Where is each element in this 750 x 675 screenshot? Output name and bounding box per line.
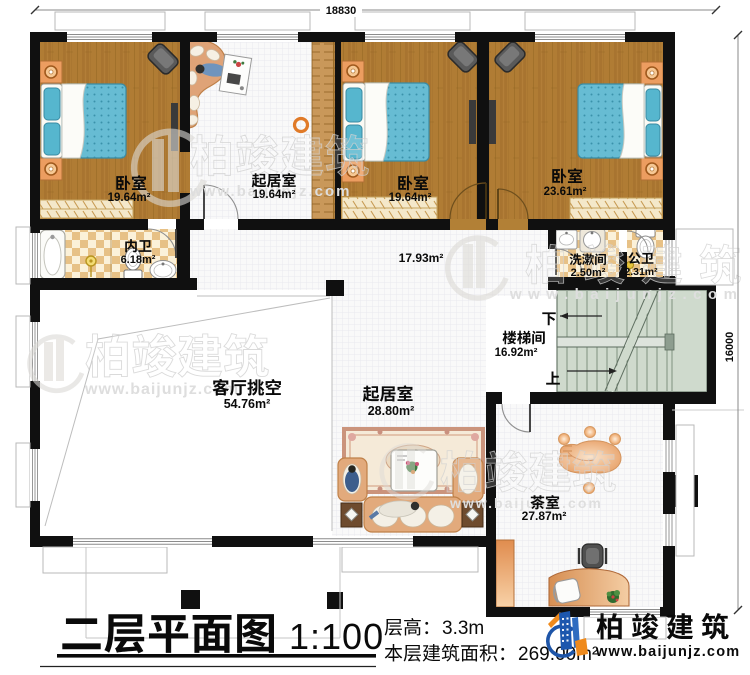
svg-text:2.50m²: 2.50m² — [571, 267, 606, 279]
svg-text:6.18m²: 6.18m² — [121, 254, 156, 266]
svg-text:28.80m²: 28.80m² — [368, 404, 415, 418]
svg-text:19.64m²: 19.64m² — [253, 189, 296, 201]
svg-text:54.76m²: 54.76m² — [224, 397, 271, 411]
svg-text:16.92m²: 16.92m² — [495, 347, 538, 359]
svg-text:19.64m²: 19.64m² — [108, 192, 151, 204]
svg-text:19.64m²: 19.64m² — [389, 192, 432, 204]
svg-text:1:100: 1:100 — [289, 616, 384, 657]
svg-text:16000: 16000 — [724, 332, 736, 363]
svg-text:27.87m²: 27.87m² — [522, 509, 567, 523]
svg-text:2.31m²: 2.31m² — [624, 266, 658, 278]
svg-text:23.61m²: 23.61m² — [544, 186, 587, 198]
svg-text:www.baijunjz.com: www.baijunjz.com — [595, 644, 740, 660]
svg-text:18830: 18830 — [326, 5, 357, 17]
svg-text:17.93m²: 17.93m² — [399, 251, 444, 265]
svg-text:3.3m: 3.3m — [442, 618, 484, 639]
svg-text:www.baijunjz.com: www.baijunjz.com — [509, 286, 743, 303]
